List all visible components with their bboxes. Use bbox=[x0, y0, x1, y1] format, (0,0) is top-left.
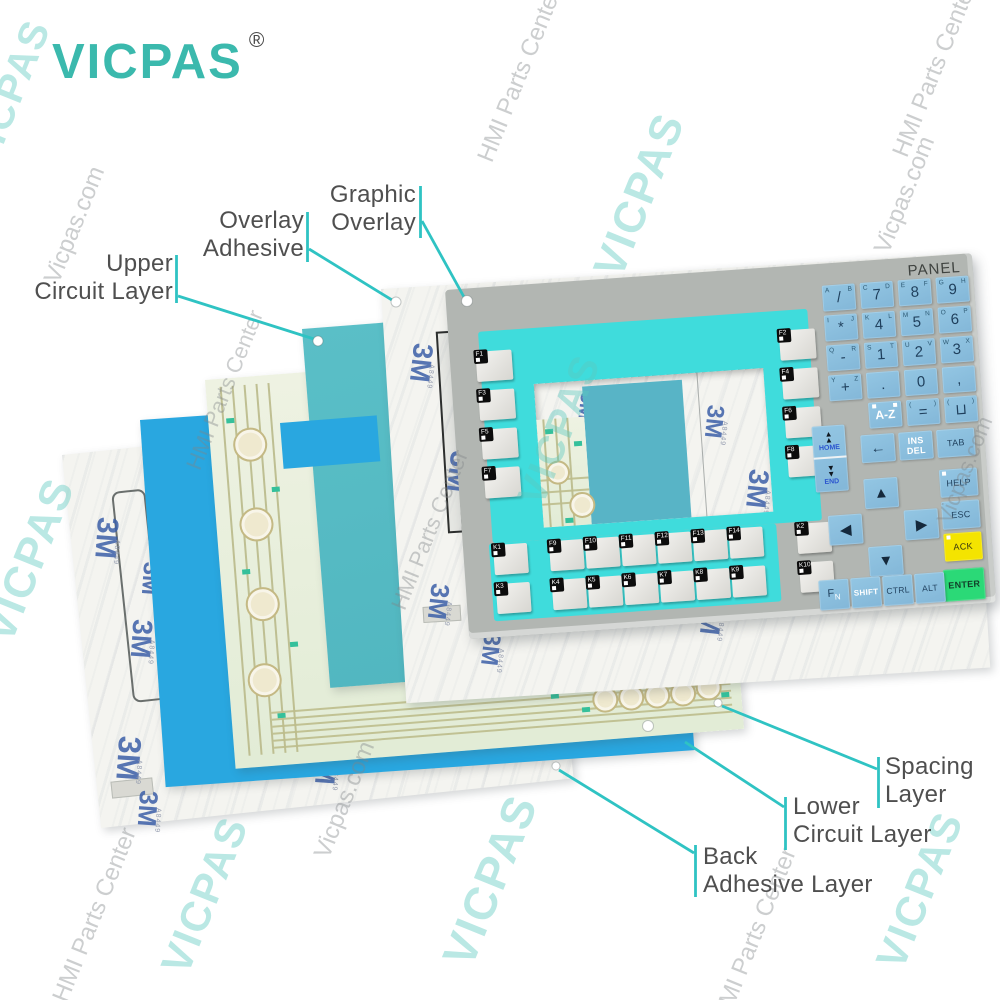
key-f13: F13 bbox=[692, 529, 728, 561]
key-sym: ()⊔ bbox=[944, 395, 979, 423]
key-main-label: 6 bbox=[938, 310, 972, 329]
down-arrow-icon: ▼ bbox=[868, 551, 903, 570]
logo-text: VICPAS bbox=[52, 35, 243, 89]
key-enter: ENTER bbox=[943, 567, 986, 602]
key-backspace: ← bbox=[860, 433, 896, 463]
key--: QR- bbox=[826, 343, 861, 371]
right-arrow-icon: ▶ bbox=[904, 514, 939, 534]
key-f12: F12 bbox=[657, 531, 693, 563]
down-arrow-icon: ▼ bbox=[827, 471, 835, 478]
key-7: CD7 bbox=[860, 281, 895, 309]
key-main-label: A-Z bbox=[868, 406, 902, 422]
key-1: ST1 bbox=[864, 341, 899, 369]
key-main-label: / bbox=[822, 288, 856, 307]
callout-label-overlay-adhesive: OverlayAdhesive bbox=[203, 207, 304, 263]
key-main-label: 2 bbox=[902, 342, 936, 361]
key-main-label: = bbox=[906, 402, 940, 421]
key-main-label: 5 bbox=[900, 313, 934, 332]
key-arrow-up: ▲ bbox=[863, 477, 899, 509]
callout-label-line: Overlay bbox=[203, 207, 304, 235]
key-main-label: - bbox=[826, 348, 860, 367]
key-.: . bbox=[866, 371, 901, 399]
key-tag-f5: F5 bbox=[479, 427, 494, 442]
callout-line-back-adhesive-layer bbox=[559, 770, 694, 853]
shift-label: SHIFT bbox=[851, 587, 882, 598]
spacing-window-cutout bbox=[280, 415, 380, 468]
key-k2: K2 bbox=[796, 522, 832, 554]
key-arrow-right: ▶ bbox=[904, 508, 940, 540]
key-9: GH9 bbox=[935, 275, 970, 303]
callout-line-overlay-adhesive bbox=[309, 249, 392, 300]
scene: 3MA84493MA84493MA84493MA84493MA84493MA84… bbox=[0, 0, 1000, 1000]
callout-label-line: Graphic bbox=[330, 181, 416, 209]
key-f9: F9 bbox=[549, 539, 585, 571]
key-ctrl: CTRL bbox=[882, 574, 914, 606]
key-main-label: . bbox=[866, 375, 900, 394]
circuit-pad bbox=[242, 569, 250, 575]
ack-label: ACK bbox=[944, 540, 983, 553]
key-main-label: 7 bbox=[860, 285, 894, 304]
callout-label-upper-circuit-layer: UpperCircuit Layer bbox=[34, 250, 173, 306]
watermark-text: VICPAS bbox=[431, 787, 548, 974]
callout-label-line: Circuit Layer bbox=[34, 278, 173, 306]
key-f10: F10 bbox=[585, 536, 621, 568]
circuit-pad bbox=[582, 707, 590, 713]
circuit-pad bbox=[226, 418, 234, 424]
key-home-end: ▲▲HOME▼▼END bbox=[811, 424, 849, 492]
key-main-label: 4 bbox=[862, 315, 896, 334]
key-main-label: 3 bbox=[940, 340, 974, 359]
key-main-label: * bbox=[824, 318, 858, 337]
circuit-pad bbox=[290, 642, 298, 648]
key-2: UV2 bbox=[902, 338, 937, 366]
up-arrow-icon: ▲ bbox=[825, 437, 833, 444]
watermark-text: VICPAS bbox=[152, 809, 258, 980]
key-tag-f4: F4 bbox=[779, 367, 794, 382]
vicpas-logo: VICPAS® bbox=[52, 34, 258, 90]
graphic-overlay-panel: PANEL 3MA84493MA84493MA8449 F1F3F5F7F2F4… bbox=[445, 253, 996, 639]
callout-label-lower-circuit-layer: LowerCircuit Layer bbox=[793, 793, 932, 849]
callout-label-graphic-overlay: GraphicOverlay bbox=[330, 181, 416, 237]
end-label: END bbox=[824, 477, 839, 485]
key-f14: F14 bbox=[728, 526, 764, 558]
key-tag-f3: F3 bbox=[476, 388, 491, 403]
key-tag-f8: F8 bbox=[785, 445, 800, 460]
key-tag-k4: K4 bbox=[549, 577, 564, 592]
key-k1: K1 bbox=[493, 543, 529, 575]
key-tag-f2: F2 bbox=[777, 328, 792, 343]
key-5: MN5 bbox=[900, 308, 935, 336]
key-f3: F3 bbox=[478, 388, 516, 420]
key-tag-k8: K8 bbox=[693, 567, 708, 582]
help-label: HELP bbox=[939, 476, 978, 489]
key-f11: F11 bbox=[621, 534, 657, 566]
key-main-label: 1 bbox=[864, 345, 898, 364]
key-tag-f12: F12 bbox=[654, 531, 669, 546]
ctrl-label: CTRL bbox=[883, 584, 914, 596]
key-+: YZ+ bbox=[828, 373, 863, 401]
up-arrow-icon: ▲ bbox=[864, 483, 899, 502]
callout-label-line: Lower bbox=[793, 793, 932, 821]
registered-mark-icon: ® bbox=[249, 29, 264, 52]
key-ack: ACK bbox=[943, 531, 983, 562]
key-k7: K7 bbox=[659, 570, 695, 602]
callout-line-lower-circuit-layer bbox=[685, 742, 784, 807]
alt-label: ALT bbox=[915, 582, 946, 594]
watermark-text: Vicpas.com bbox=[869, 132, 941, 257]
key-slash: AB/ bbox=[822, 283, 857, 311]
key-end: ▼▼END bbox=[814, 457, 849, 492]
callout-line-spacing-layer bbox=[722, 706, 877, 769]
key-tag-f9: F9 bbox=[547, 539, 562, 554]
callout-label-back-adhesive-layer: BackAdhesive Layer bbox=[703, 843, 873, 899]
key-k4: K4 bbox=[552, 578, 588, 610]
key-k3: K3 bbox=[496, 582, 532, 614]
key-,: , bbox=[942, 365, 977, 393]
key-0: 0 bbox=[904, 368, 939, 396]
key-4: KL4 bbox=[862, 311, 897, 339]
key-arrow-down: ▼ bbox=[868, 545, 904, 577]
watermark-text: VICPAS bbox=[584, 106, 695, 285]
circuit-pad bbox=[721, 692, 729, 698]
key-tag-k9: K9 bbox=[729, 565, 744, 580]
key-f1: F1 bbox=[475, 350, 513, 382]
key-tag-f7: F7 bbox=[481, 466, 496, 481]
key-8: EF8 bbox=[897, 278, 932, 306]
key-fn: FN bbox=[818, 579, 850, 611]
backspace-arrow-icon: ← bbox=[861, 439, 896, 458]
key-sym: ()= bbox=[906, 398, 941, 426]
circuit-pad bbox=[272, 486, 280, 492]
key-f7: F7 bbox=[484, 466, 522, 498]
key-tag-f14: F14 bbox=[726, 526, 741, 541]
key-tag-f13: F13 bbox=[690, 528, 705, 543]
callout-label-line: Spacing bbox=[885, 753, 974, 781]
key-*: IJ* bbox=[824, 313, 859, 341]
key-alt: ALT bbox=[914, 572, 946, 604]
key-f5: F5 bbox=[481, 427, 519, 459]
key-tag-f1: F1 bbox=[473, 349, 488, 364]
callout-label-line: Adhesive Layer bbox=[703, 871, 873, 899]
key-shift: SHIFT bbox=[850, 576, 882, 608]
ins-del-label: INSDEL bbox=[898, 434, 933, 456]
key-help: HELP bbox=[939, 467, 979, 498]
adhesive-code-text: A8449 bbox=[111, 539, 120, 565]
enter-label: ENTER bbox=[944, 578, 986, 591]
brand-3m-logo: 3M bbox=[108, 735, 148, 782]
key-main-label: , bbox=[942, 370, 976, 389]
adhesive-code-text: A8449 bbox=[133, 760, 142, 786]
key-home: ▲▲HOME bbox=[811, 424, 846, 459]
adhesive-code-text: A8449 bbox=[153, 807, 162, 833]
key-tag-k7: K7 bbox=[657, 570, 672, 585]
callout-label-line: Overlay bbox=[330, 209, 416, 237]
fn-label: FN bbox=[819, 586, 850, 602]
key-tag-f11: F11 bbox=[618, 534, 633, 549]
key-tag-k5: K5 bbox=[585, 575, 600, 590]
brand-3m-logo: 3M bbox=[403, 342, 439, 384]
key-main-label: 9 bbox=[936, 280, 970, 299]
key-arrow-left: ◀ bbox=[828, 513, 864, 545]
key-k8: K8 bbox=[695, 568, 731, 600]
key-mark bbox=[942, 472, 946, 476]
key-esc: ESC bbox=[941, 499, 981, 530]
key-f2: F2 bbox=[779, 328, 817, 360]
key-ins-del: INSDEL bbox=[898, 430, 934, 460]
key-main-label: ⊔ bbox=[944, 399, 978, 419]
key-tag-k3: K3 bbox=[494, 581, 509, 596]
key-k6: K6 bbox=[623, 573, 659, 605]
tab-label: TAB bbox=[937, 436, 976, 449]
key-main-label: 0 bbox=[904, 372, 938, 391]
watermark-text: HMI Parts Center bbox=[887, 0, 982, 161]
key-tag-k10: K10 bbox=[797, 560, 812, 575]
esc-label: ESC bbox=[942, 508, 981, 521]
key-k9: K9 bbox=[731, 565, 767, 597]
key-a-z: A-Z bbox=[868, 400, 903, 428]
key-mark bbox=[946, 535, 950, 539]
key-3: WX3 bbox=[940, 335, 975, 363]
key-tag-f6: F6 bbox=[782, 406, 797, 421]
callout-label-line: Back bbox=[703, 843, 873, 871]
key-6: OP6 bbox=[937, 305, 972, 333]
key-tag-f10: F10 bbox=[583, 536, 598, 551]
watermark-text: HMI Parts Center bbox=[47, 824, 142, 1000]
callout-label-line: Upper bbox=[34, 250, 173, 278]
key-main-label: 8 bbox=[898, 283, 932, 302]
key-tab: TAB bbox=[936, 427, 976, 458]
home-label: HOME bbox=[819, 443, 840, 451]
key-tag-k6: K6 bbox=[621, 572, 636, 587]
key-k5: K5 bbox=[587, 575, 623, 607]
callout-label-line: Adhesive bbox=[203, 235, 304, 263]
key-main-label: + bbox=[828, 378, 862, 397]
key-tag-k1: K1 bbox=[491, 542, 506, 557]
adhesive-code-text: A8449 bbox=[495, 648, 505, 674]
key-f4: F4 bbox=[781, 367, 819, 399]
key-tag-k2: K2 bbox=[794, 521, 809, 536]
watermark-text: HMI Parts Center bbox=[472, 0, 567, 166]
callout-line-upper-circuit-layer bbox=[178, 296, 314, 339]
left-arrow-icon: ◀ bbox=[828, 519, 863, 539]
